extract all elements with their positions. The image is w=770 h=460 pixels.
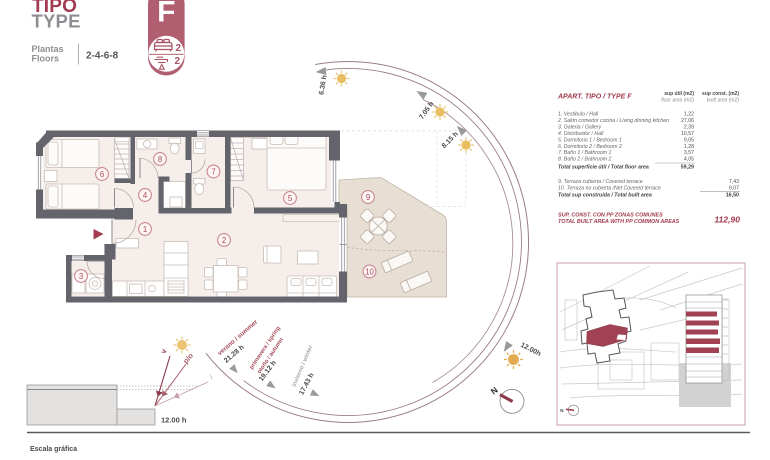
- svg-text:10,57: 10,57: [681, 131, 694, 137]
- svg-text:floor area (m2): floor area (m2): [661, 97, 694, 103]
- svg-text:4,05: 4,05: [684, 157, 694, 163]
- svg-text:7,43: 7,43: [729, 179, 739, 185]
- svg-text:Escala gráfica: Escala gráfica: [30, 446, 77, 453]
- svg-text:Floors: Floors: [32, 54, 60, 64]
- svg-text:10: 10: [365, 267, 374, 276]
- svg-text:2-4-6-8: 2-4-6-8: [86, 51, 119, 62]
- svg-text:9,05: 9,05: [684, 137, 694, 143]
- svg-text:APART. TIPO / TYPE F: APART. TIPO / TYPE F: [557, 94, 632, 101]
- svg-text:1,28: 1,28: [684, 144, 694, 150]
- svg-text:F: F: [157, 0, 175, 29]
- svg-text:TYPE: TYPE: [32, 10, 81, 31]
- svg-text:built area (m2): built area (m2): [707, 97, 740, 103]
- svg-text:9: 9: [366, 193, 370, 202]
- svg-text:27,06: 27,06: [681, 118, 694, 124]
- svg-text:1,22: 1,22: [684, 112, 694, 118]
- svg-text:8: 8: [158, 155, 162, 164]
- svg-text:12.00 h: 12.00 h: [161, 416, 187, 425]
- svg-text:16,50: 16,50: [726, 193, 739, 199]
- svg-text:2,39: 2,39: [684, 124, 694, 130]
- svg-text:2. Salón comedor cocina / Livi: 2. Salón comedor cocina / Living dinning…: [557, 118, 669, 124]
- svg-text:112,90: 112,90: [714, 215, 740, 225]
- svg-text:6: 6: [100, 170, 104, 179]
- svg-text:9,07: 9,07: [729, 185, 739, 191]
- svg-text:Total superficie útil / Total: Total superficie útil / Total floor area: [558, 165, 649, 171]
- svg-text:1. Vestibulo / Hall: 1. Vestibulo / Hall: [558, 112, 599, 118]
- svg-text:59,29: 59,29: [681, 165, 694, 171]
- svg-text:sup const. (m2): sup const. (m2): [702, 91, 739, 97]
- svg-text:N: N: [560, 408, 563, 413]
- svg-text:7. Baño 1 / Bathroom 1: 7. Baño 1 / Bathroom 1: [558, 150, 611, 156]
- svg-text:6. Dormitorio 2 / Bedroom 2: 6. Dormitorio 2 / Bedroom 2: [558, 144, 622, 150]
- svg-text:3. Galeria / Gallery: 3. Galeria / Gallery: [558, 124, 602, 130]
- svg-text:1: 1: [143, 225, 147, 234]
- svg-text:8. Baño 2 / Bathroom 2: 8. Baño 2 / Bathroom 2: [558, 157, 611, 163]
- svg-text:2: 2: [175, 56, 181, 67]
- svg-text:3: 3: [79, 272, 83, 281]
- svg-text:10. Terraza no cubierta /Net C: 10. Terraza no cubierta /Net Covered ter…: [558, 185, 661, 191]
- svg-text:2: 2: [176, 43, 182, 54]
- svg-text:SUP. CONST. CON PP ZONAS COMUN: SUP. CONST. CON PP ZONAS COMUNES: [558, 213, 663, 219]
- svg-text:TOTAL BUILT AREA WITH PP COMMO: TOTAL BUILT AREA WITH PP COMMON AREAS: [558, 219, 680, 225]
- svg-text:5. Dormitorio 1 / Bedroom 1: 5. Dormitorio 1 / Bedroom 1: [558, 137, 622, 143]
- svg-text:2: 2: [222, 236, 226, 245]
- svg-text:5: 5: [288, 194, 293, 203]
- svg-text:Plantas: Plantas: [32, 44, 64, 54]
- svg-text:Total sup construida / Total b: Total sup construida / Total built area: [558, 193, 652, 199]
- svg-text:4: 4: [143, 191, 148, 200]
- svg-text:9. Terraza cubierta / Covered: 9. Terraza cubierta / Covered terrace: [558, 179, 643, 185]
- svg-text:3,57: 3,57: [684, 150, 694, 156]
- svg-text:7: 7: [211, 167, 215, 176]
- svg-text:4. Distribuidor / Hall: 4. Distribuidor / Hall: [558, 131, 604, 137]
- svg-text:sup útil (m2): sup útil (m2): [664, 91, 694, 97]
